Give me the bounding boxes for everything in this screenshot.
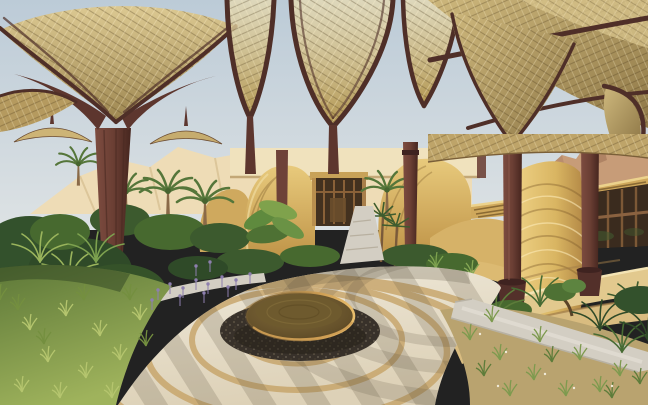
scene-photo [0, 0, 648, 405]
photo-stage [0, 0, 648, 405]
photo-frame [0, 0, 648, 405]
